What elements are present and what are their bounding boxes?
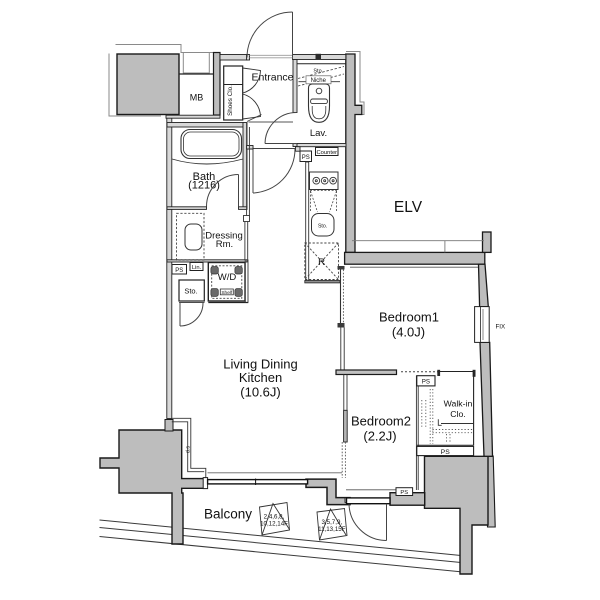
svg-text:(1216): (1216) bbox=[188, 180, 220, 192]
svg-text:2,4,6,8,: 2,4,6,8, bbox=[264, 514, 285, 521]
svg-text:(4.0J): (4.0J) bbox=[392, 325, 425, 340]
svg-text:PS: PS bbox=[441, 449, 451, 456]
svg-text:Shoes Clo.: Shoes Clo. bbox=[227, 85, 234, 116]
svg-text:PS: PS bbox=[422, 379, 430, 386]
svg-text:Shelf: Shelf bbox=[221, 290, 233, 296]
svg-text:Walk-in: Walk-in bbox=[444, 399, 473, 409]
svg-text:Balcony: Balcony bbox=[204, 507, 252, 522]
svg-text:(2.2J): (2.2J) bbox=[363, 429, 396, 444]
svg-text:10,12,14F: 10,12,14F bbox=[260, 521, 288, 528]
svg-text:PS: PS bbox=[400, 490, 408, 496]
svg-text:R: R bbox=[318, 257, 325, 268]
svg-text:W/D: W/D bbox=[218, 272, 237, 283]
svg-text:Niche: Niche bbox=[311, 78, 327, 84]
svg-text:FIX: FIX bbox=[496, 324, 506, 331]
svg-text:(10.6J): (10.6J) bbox=[240, 385, 280, 400]
svg-text:PS: PS bbox=[175, 268, 183, 274]
svg-text:Sto.: Sto. bbox=[313, 69, 323, 75]
svg-text:Kitchen: Kitchen bbox=[239, 370, 282, 385]
svg-text:ELV: ELV bbox=[394, 199, 423, 216]
svg-text:Rm.: Rm. bbox=[216, 239, 233, 250]
svg-text:3,5,7,9,: 3,5,7,9, bbox=[321, 519, 342, 526]
svg-text:Sto.: Sto. bbox=[184, 287, 197, 296]
svg-text:11,13,15F: 11,13,15F bbox=[318, 526, 346, 533]
svg-text:Bedroom2: Bedroom2 bbox=[351, 414, 411, 429]
svg-text:Clo.: Clo. bbox=[450, 409, 465, 419]
svg-text:PS: PS bbox=[302, 155, 310, 161]
svg-text:Counter: Counter bbox=[316, 150, 337, 156]
svg-text:Lin.: Lin. bbox=[192, 265, 202, 271]
svg-text:d.s: d.s bbox=[186, 446, 192, 454]
svg-text:Lav.: Lav. bbox=[310, 128, 327, 139]
svg-text:Sto.: Sto. bbox=[318, 223, 327, 229]
svg-text:MB: MB bbox=[190, 93, 204, 103]
svg-text:Bedroom1: Bedroom1 bbox=[379, 310, 439, 325]
